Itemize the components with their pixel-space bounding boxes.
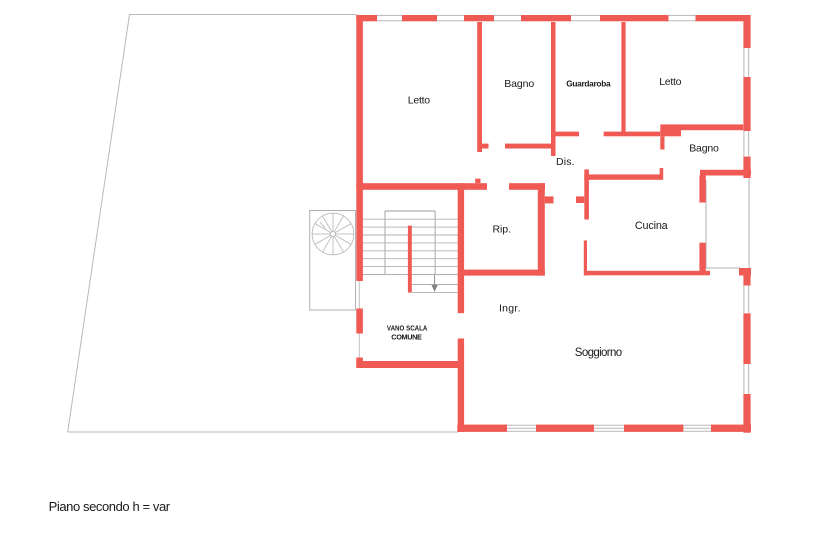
svg-text:Bagno: Bagno [504,78,534,90]
svg-text:Dis.: Dis. [556,156,575,168]
svg-text:Rip.: Rip. [493,224,512,236]
svg-text:Soggiorno: Soggiorno [575,347,622,359]
svg-text:COMUNE: COMUNE [391,333,422,342]
svg-text:Piano secondo h = var: Piano secondo h = var [49,499,171,514]
svg-text:VANO SCALA: VANO SCALA [387,325,428,333]
svg-text:Bagno: Bagno [689,142,719,154]
svg-text:Letto: Letto [659,76,681,88]
svg-text:Ingr.: Ingr. [499,303,521,315]
svg-text:Letto: Letto [408,95,430,107]
svg-text:Cucina: Cucina [635,220,668,232]
svg-text:Guardaroba: Guardaroba [566,79,611,89]
